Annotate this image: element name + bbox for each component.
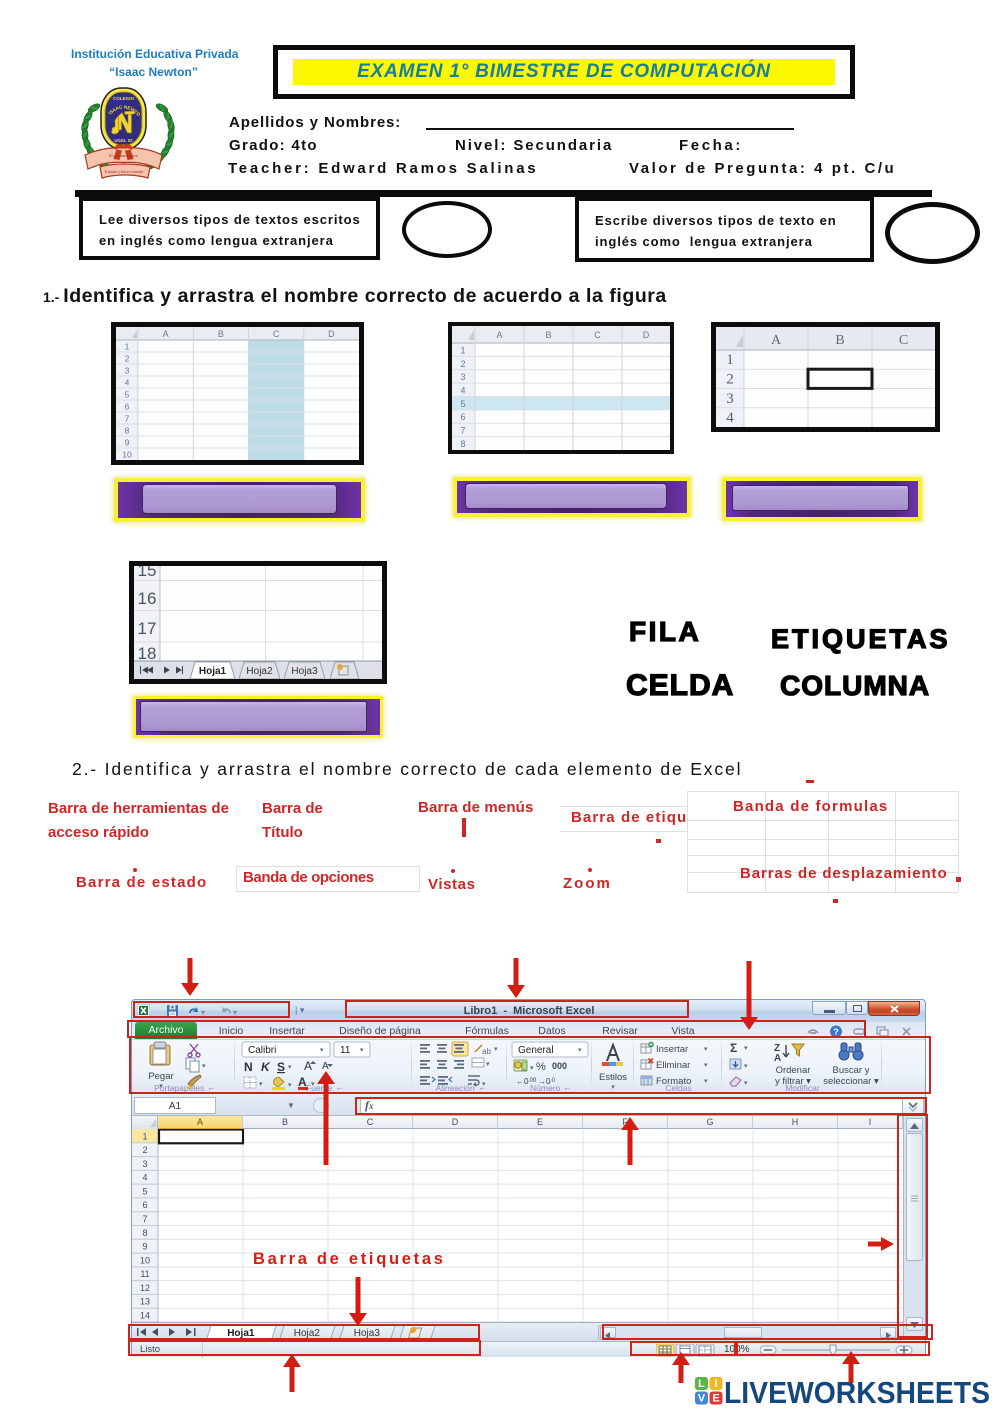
svg-text:6: 6 bbox=[142, 1200, 147, 1210]
svg-text:8: 8 bbox=[142, 1228, 147, 1238]
svg-text:A: A bbox=[496, 330, 502, 340]
svg-text:B: B bbox=[545, 330, 551, 340]
svg-text:B: B bbox=[218, 329, 224, 339]
svg-text:18: 18 bbox=[138, 644, 157, 663]
svg-text:V: V bbox=[698, 1393, 706, 1405]
svg-text:12: 12 bbox=[140, 1283, 150, 1293]
svg-text:5: 5 bbox=[142, 1186, 147, 1196]
svg-text:A: A bbox=[771, 333, 782, 348]
svg-text:7: 7 bbox=[460, 426, 465, 436]
svg-text:Hoja1: Hoja1 bbox=[199, 666, 227, 677]
svg-text:D: D bbox=[643, 330, 650, 340]
svg-text:6: 6 bbox=[460, 412, 465, 422]
svg-text:4: 4 bbox=[460, 386, 465, 396]
svg-text:5: 5 bbox=[125, 390, 130, 400]
svg-text:2: 2 bbox=[142, 1145, 147, 1155]
svg-text:LIVEWORKSHEETS: LIVEWORKSHEETS bbox=[724, 1375, 990, 1407]
svg-text:16: 16 bbox=[138, 589, 157, 608]
svg-text:8: 8 bbox=[460, 439, 465, 449]
svg-text:13: 13 bbox=[140, 1297, 150, 1307]
svg-text:3: 3 bbox=[460, 372, 465, 382]
svg-text:4: 4 bbox=[142, 1173, 147, 1183]
svg-text:2: 2 bbox=[726, 372, 734, 388]
svg-text:C: C bbox=[594, 330, 601, 340]
svg-text:1: 1 bbox=[125, 342, 130, 352]
svg-text:C: C bbox=[273, 329, 280, 339]
svg-text:8: 8 bbox=[125, 426, 130, 436]
svg-text:C: C bbox=[899, 333, 908, 348]
svg-text:3: 3 bbox=[142, 1159, 147, 1169]
svg-text:B: B bbox=[835, 333, 844, 348]
svg-text:7: 7 bbox=[125, 414, 130, 424]
svg-text:9: 9 bbox=[142, 1242, 147, 1252]
svg-text:4: 4 bbox=[726, 410, 734, 426]
svg-text:D: D bbox=[328, 329, 335, 339]
svg-text:Triunfar y hacer triunfar: Triunfar y hacer triunfar bbox=[104, 169, 144, 174]
svg-text:Hoja3: Hoja3 bbox=[291, 666, 318, 677]
svg-text:14: 14 bbox=[140, 1311, 150, 1321]
svg-text:10: 10 bbox=[122, 450, 132, 460]
svg-text:7: 7 bbox=[142, 1214, 147, 1224]
svg-text:COLEGIO: COLEGIO bbox=[113, 96, 135, 101]
svg-text:3: 3 bbox=[726, 391, 734, 407]
svg-text:10: 10 bbox=[140, 1255, 150, 1265]
svg-text:2: 2 bbox=[460, 359, 465, 369]
svg-text:4: 4 bbox=[125, 378, 130, 388]
svg-text:17: 17 bbox=[138, 619, 157, 638]
svg-text:2: 2 bbox=[125, 354, 130, 364]
svg-text:L: L bbox=[698, 1378, 705, 1390]
svg-text:3: 3 bbox=[125, 366, 130, 376]
svg-text:El que nacía para: El que nacía para bbox=[108, 153, 138, 158]
svg-text:1: 1 bbox=[726, 352, 734, 368]
svg-text:9: 9 bbox=[125, 438, 130, 448]
svg-text:15: 15 bbox=[138, 566, 157, 580]
svg-text:E: E bbox=[712, 1393, 719, 1405]
svg-text:11: 11 bbox=[140, 1269, 149, 1279]
svg-text:UGEL 02: UGEL 02 bbox=[114, 138, 133, 143]
svg-text:A: A bbox=[163, 329, 169, 339]
svg-text:1: 1 bbox=[460, 345, 465, 355]
svg-text:I: I bbox=[714, 1378, 717, 1390]
svg-text:6: 6 bbox=[125, 402, 130, 412]
svg-text:5: 5 bbox=[460, 399, 465, 409]
svg-text:1: 1 bbox=[142, 1131, 147, 1141]
svg-text:Hoja2: Hoja2 bbox=[246, 666, 273, 677]
